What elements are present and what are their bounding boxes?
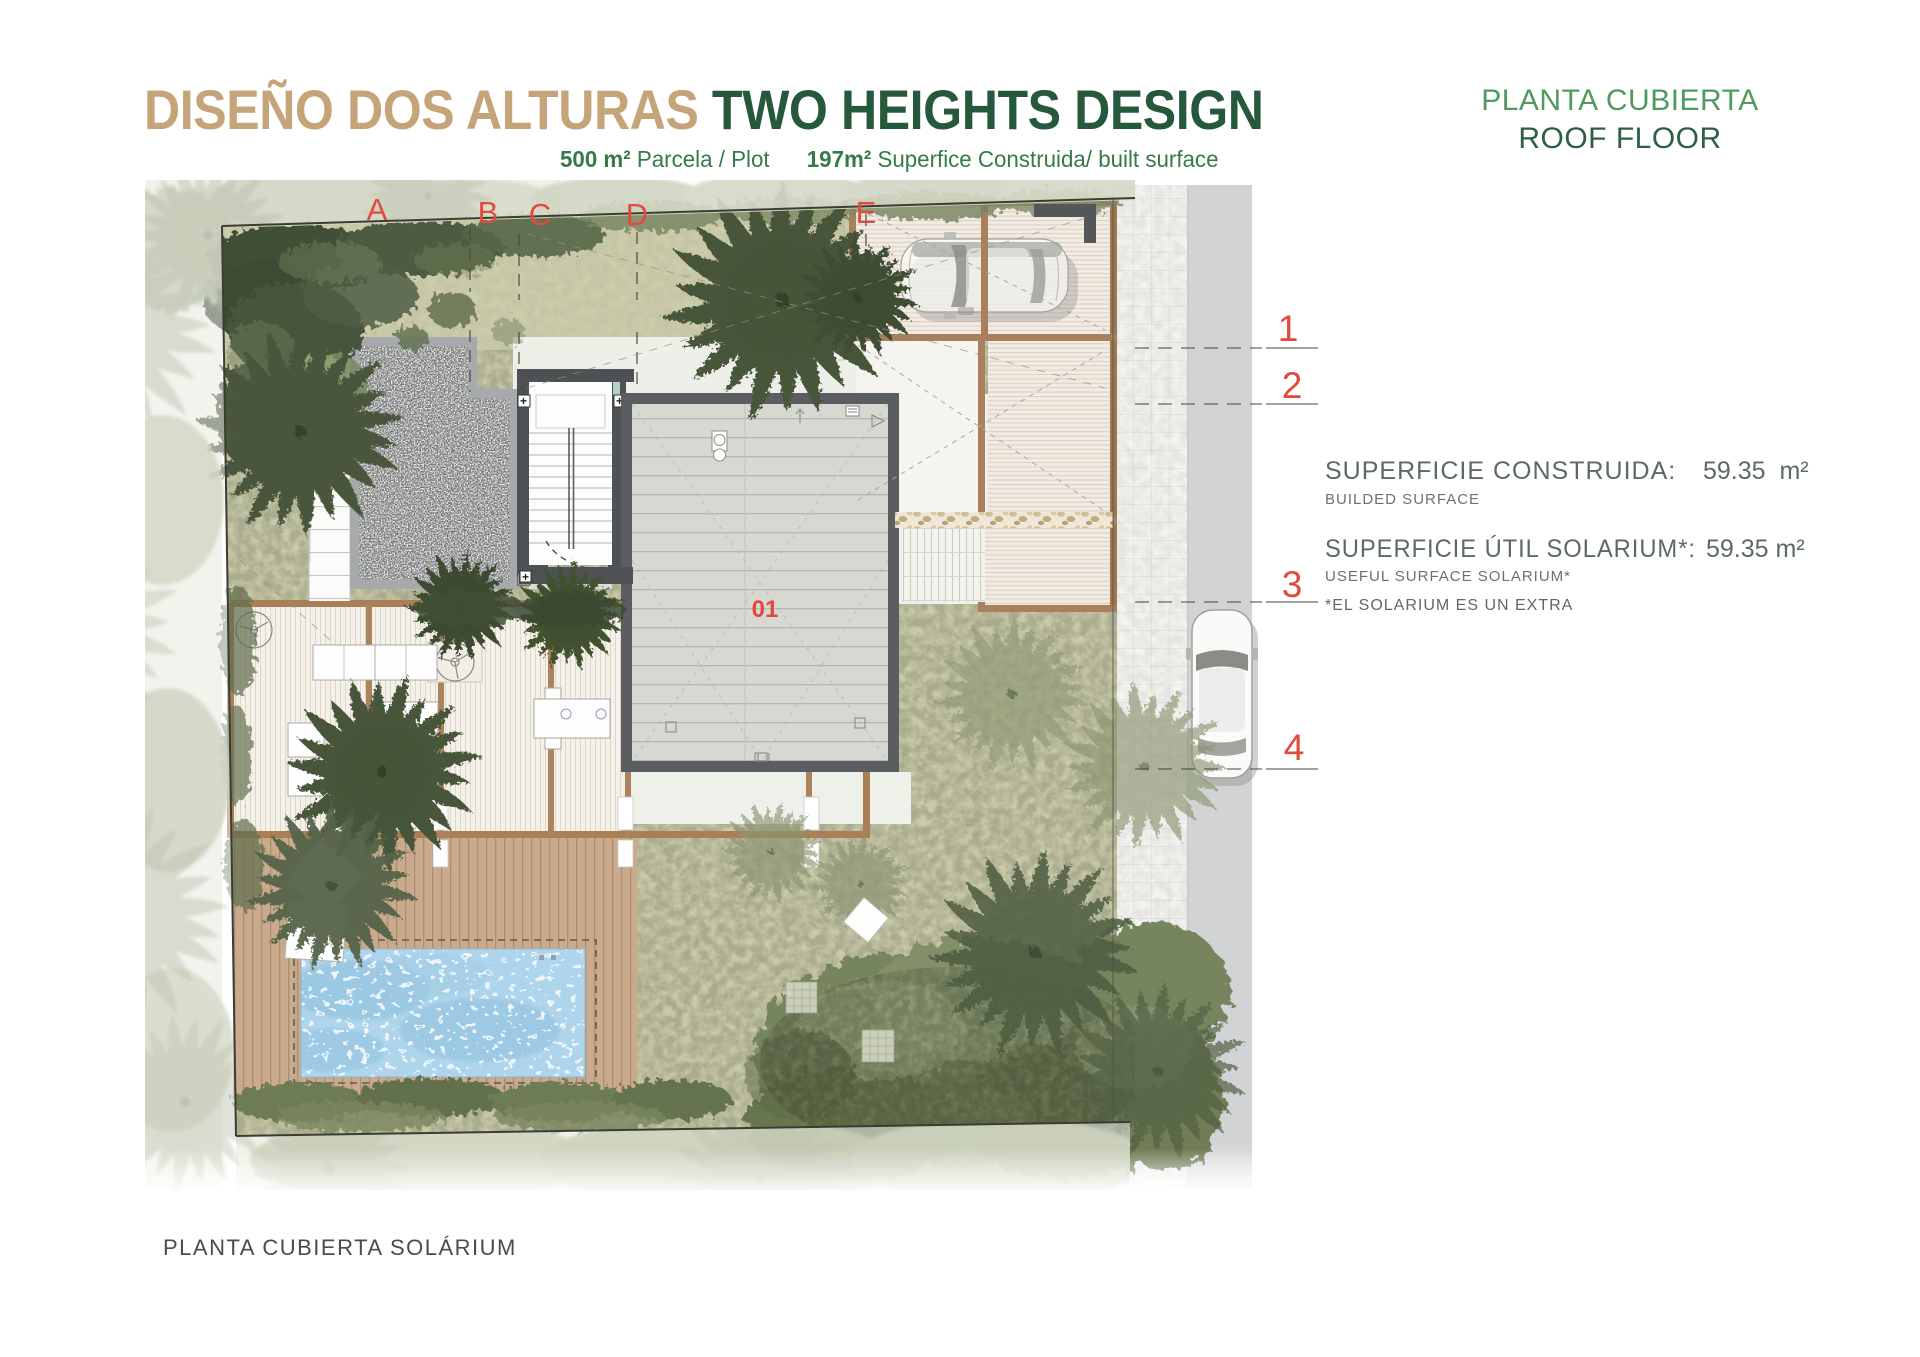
svg-text:+: + [522,570,529,584]
svg-text:1: 1 [1278,308,1299,349]
svg-text:4: 4 [1284,727,1305,768]
svg-text:3: 3 [1282,564,1303,605]
svg-text:01: 01 [752,596,779,623]
svg-text:2: 2 [1282,365,1303,406]
svg-text:+: + [520,394,527,408]
svg-text:A: A [367,192,388,227]
svg-text:C: C [529,197,551,232]
svg-text:B: B [478,195,499,230]
svg-text:E: E [856,195,877,230]
svg-text:D: D [626,197,648,232]
